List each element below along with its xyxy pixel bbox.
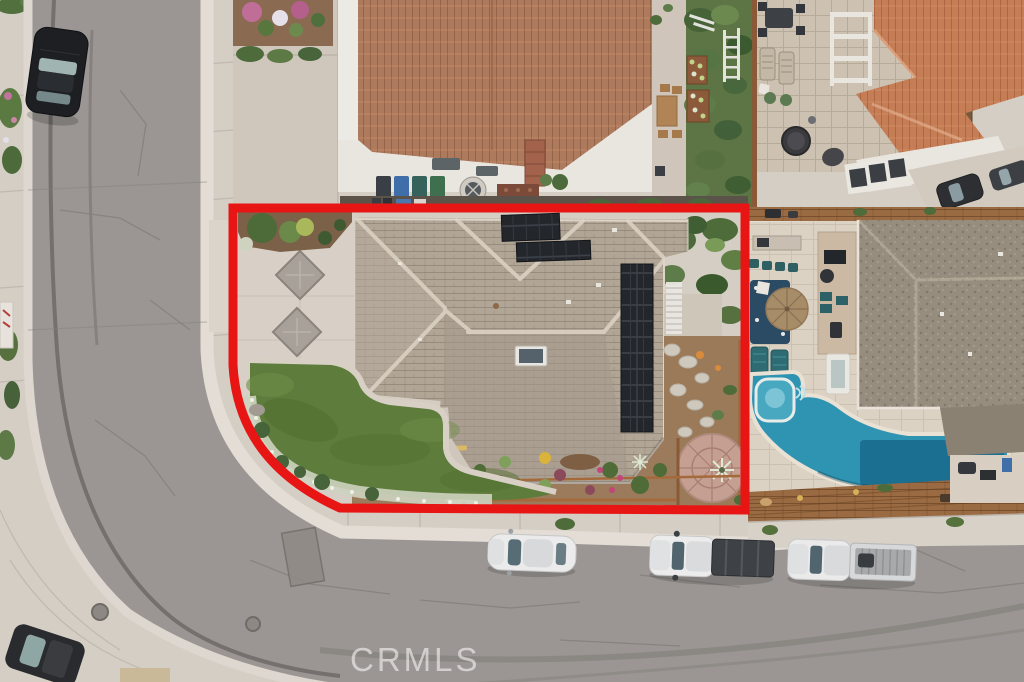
aerial-photo: CRMLS xyxy=(0,0,1024,682)
outdoor-tv xyxy=(824,250,846,264)
garden-rock xyxy=(249,404,265,416)
patio-umbrella xyxy=(766,288,808,330)
window xyxy=(476,166,498,176)
white-lattice xyxy=(666,282,682,334)
wood-fence xyxy=(752,0,757,207)
dining-table xyxy=(765,8,793,28)
wood-table xyxy=(657,96,677,126)
solar-array-side xyxy=(621,264,653,432)
manhole-cover xyxy=(246,617,260,631)
cargo xyxy=(858,553,874,568)
blue-bin xyxy=(1002,458,1012,472)
trees-strip xyxy=(684,0,757,207)
manhole-cover xyxy=(92,604,108,620)
subject-property xyxy=(209,196,749,508)
round-flagstone-patio xyxy=(678,434,746,502)
raised-bed xyxy=(687,56,707,84)
white-pickup-open-bed xyxy=(787,539,917,591)
side-flagstone-garden xyxy=(664,336,746,508)
windshield xyxy=(672,542,685,570)
neighbor-mid-patio xyxy=(650,0,686,196)
neighbor-top-walk xyxy=(233,0,338,207)
raised-bed xyxy=(687,90,709,122)
window xyxy=(432,158,460,170)
spiky-plant xyxy=(632,454,648,470)
grill xyxy=(830,322,842,338)
yellow-green-bush xyxy=(296,218,314,236)
pool-lounger xyxy=(751,347,768,375)
windshield xyxy=(508,539,522,565)
aerial-photo-canvas xyxy=(0,0,1024,682)
neighbor-house-top xyxy=(338,0,652,203)
pavement-patch xyxy=(120,668,170,682)
side-table xyxy=(756,281,770,295)
roof-extension xyxy=(940,404,1024,456)
windshield xyxy=(810,546,823,574)
